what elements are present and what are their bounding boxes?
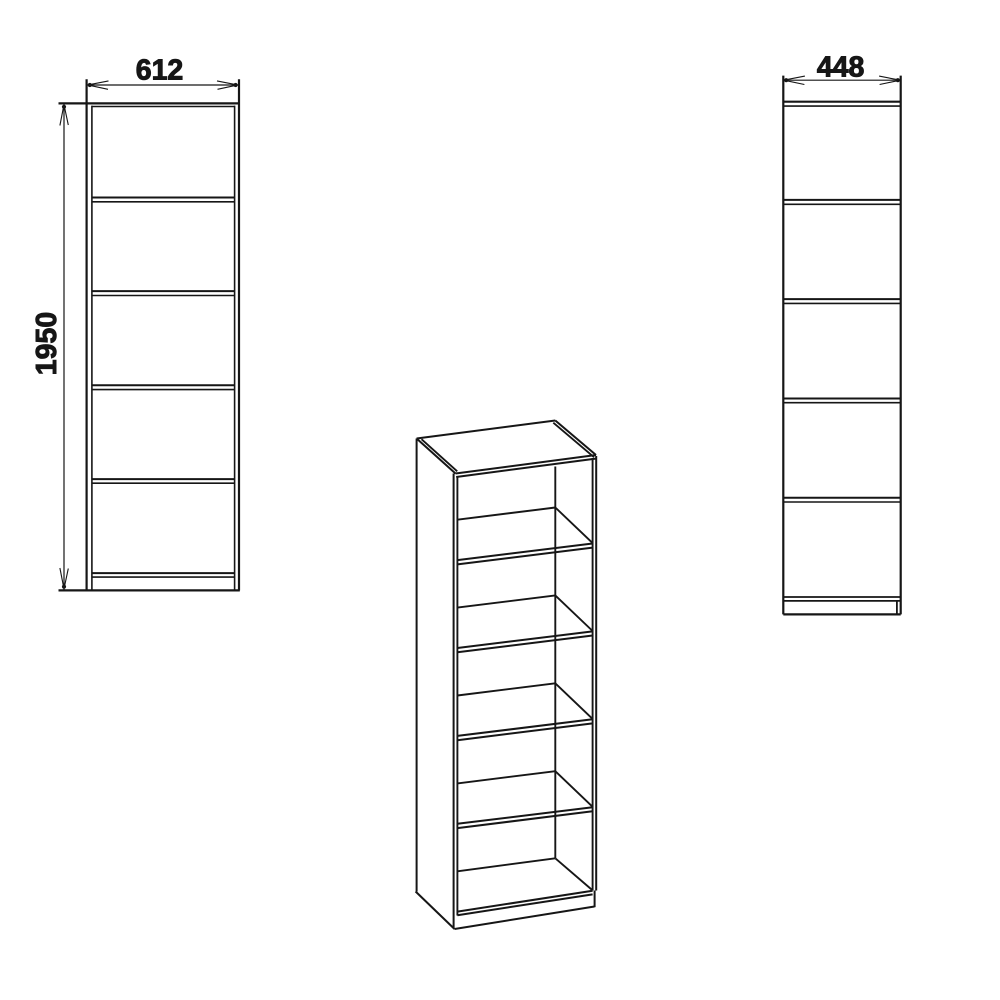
- svg-text:1950: 1950: [31, 312, 63, 375]
- svg-text:448: 448: [817, 51, 865, 83]
- svg-text:612: 612: [136, 55, 184, 87]
